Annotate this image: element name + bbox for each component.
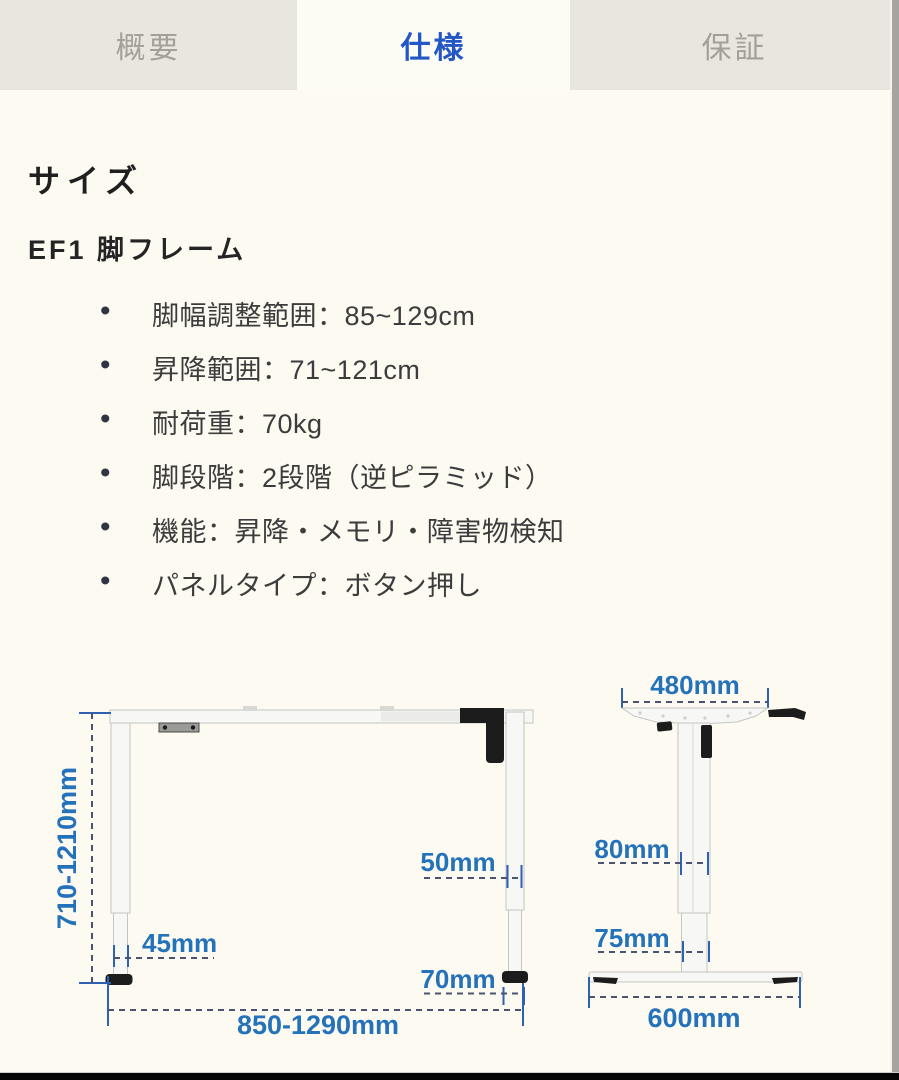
dim-label-foot-depth: 600mm — [647, 1003, 740, 1033]
side-hook — [657, 721, 673, 732]
dim-height-range: 710-1210mm — [52, 713, 111, 983]
side-handle — [768, 708, 806, 720]
tab-specifications[interactable]: 仕様 — [297, 0, 570, 90]
spec-list: 脚幅調整範囲：85~129cm 昇降範囲：71~121cm 耐荷重：70kg 脚… — [0, 286, 899, 610]
front-view-drawing: 710-1210mm 45mm 50mm 70mm — [52, 706, 533, 1040]
spec-item-leg-width-range: 脚幅調整範囲：85~129cm — [0, 286, 899, 340]
beam-mount-tab — [380, 706, 394, 711]
spec-item-leg-stages: 脚段階：2段階（逆ピラミッド） — [0, 448, 899, 502]
side-foot-pad-left — [593, 977, 618, 984]
dim-label-lower-column-depth: 75mm — [594, 923, 669, 953]
side-base-foot — [589, 972, 802, 982]
dim-label-lower-leg-width: 45mm — [142, 928, 217, 958]
dim-foot-depth: 600mm — [589, 977, 800, 1033]
dim-label-frame-width-range: 850-1290mm — [237, 1010, 399, 1040]
section-title: サイズ — [28, 156, 144, 202]
dim-label-top-bracket-depth: 480mm — [650, 670, 740, 700]
side-foot-pad-right — [772, 977, 798, 984]
tab-warranty[interactable]: 保証 — [570, 0, 899, 90]
side-motor-strip — [701, 725, 712, 758]
front-left-leg-upper — [111, 723, 130, 913]
beam-mount-tab — [243, 706, 257, 711]
tab-overview[interactable]: 概要 — [0, 0, 297, 90]
front-left-leg-lower — [114, 913, 128, 976]
dim-label-upper-leg-width: 50mm — [420, 847, 495, 877]
product-title: EF1 脚フレーム — [28, 228, 246, 267]
side-view-drawing: 480mm — [589, 670, 806, 1033]
dim-label-height-range: 710-1210mm — [52, 767, 82, 929]
spec-item-load-capacity: 耐荷重：70kg — [0, 394, 899, 448]
product-spec-page: 概要 仕様 保証 サイズ EF1 脚フレーム 脚幅調整範囲：85~129cm 昇… — [0, 0, 899, 1080]
front-right-foot — [502, 971, 528, 983]
side-top-bracket — [622, 708, 768, 724]
dim-top-bracket-depth: 480mm — [622, 670, 768, 708]
dim-label-upper-column-depth: 80mm — [594, 834, 669, 864]
dimension-diagram: 710-1210mm 45mm 50mm 70mm — [0, 660, 899, 1073]
dim-lower-leg-width: 45mm — [114, 928, 217, 967]
tab-bar: 概要 仕様 保証 — [0, 0, 899, 90]
dim-label-foot-width: 70mm — [420, 964, 495, 994]
side-column-lower — [682, 913, 708, 973]
motor-bracket-arm — [486, 708, 504, 763]
page-edge-strip — [890, 0, 899, 1073]
spec-item-functions: 機能：昇降・メモリ・障害物検知 — [0, 502, 899, 556]
front-right-leg-lower — [509, 910, 522, 972]
bottom-bar — [0, 1072, 899, 1080]
spec-item-panel-type: パネルタイプ：ボタン押し — [0, 556, 899, 610]
spec-item-lift-range: 昇降範囲：71~121cm — [0, 340, 899, 394]
